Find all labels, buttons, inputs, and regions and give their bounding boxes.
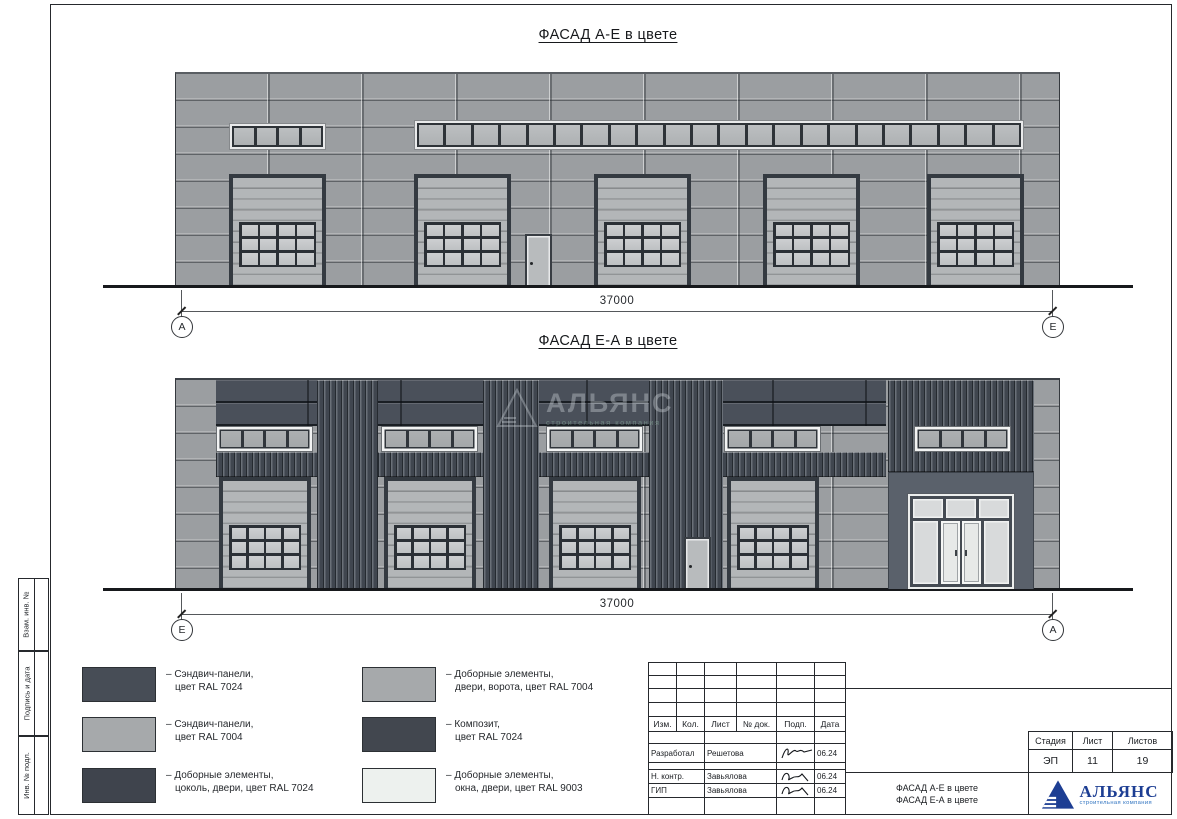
window-pane xyxy=(619,431,639,447)
window-pane xyxy=(958,253,974,265)
axis-marker-right: Е xyxy=(1042,316,1064,338)
window-pane xyxy=(266,542,281,554)
gate-window-grid xyxy=(937,222,1014,267)
storefront-main xyxy=(913,521,1009,585)
window-pane xyxy=(995,225,1011,237)
dimension-line xyxy=(181,614,1053,615)
entrance-door-right xyxy=(962,521,981,585)
window-pane xyxy=(831,225,847,237)
doc-title-line1: ФАСАД А-Е в цвете xyxy=(896,782,978,794)
window-pane xyxy=(614,528,629,540)
window-pane xyxy=(940,225,956,237)
window-pane xyxy=(221,431,241,447)
col-data: Дата xyxy=(815,717,846,732)
window-band xyxy=(724,426,821,452)
window-pane xyxy=(266,556,281,568)
col-podp: Подп. xyxy=(777,717,815,732)
window-band xyxy=(914,426,1011,452)
window-pane xyxy=(242,225,258,237)
window-pane xyxy=(614,556,629,568)
window-pane xyxy=(942,431,962,447)
window-pane xyxy=(562,528,577,540)
color-swatch xyxy=(82,717,156,752)
window-pane xyxy=(644,239,660,251)
window-pane xyxy=(464,253,480,265)
window-pane xyxy=(776,239,792,251)
window-pane xyxy=(987,431,1007,447)
window-pane xyxy=(995,125,1019,145)
glass-sidelite xyxy=(913,521,938,585)
window-pane xyxy=(482,253,498,265)
window-pane xyxy=(757,556,772,568)
window-pane xyxy=(803,125,827,145)
sectional-gate xyxy=(549,477,641,590)
window-band xyxy=(229,123,326,150)
window-pane xyxy=(427,253,443,265)
color-swatch xyxy=(362,717,436,752)
color-swatch xyxy=(82,768,156,803)
window-pane xyxy=(397,542,412,554)
door-handle xyxy=(955,550,957,556)
window-pane xyxy=(625,253,641,265)
legend-label: – Доборные элементы,цоколь, двери, цвет … xyxy=(166,768,314,803)
window-pane xyxy=(740,542,755,554)
window-pane xyxy=(266,528,281,540)
sidebar-label: Подпись и дата xyxy=(22,667,31,721)
window-pane xyxy=(774,431,794,447)
window-pane xyxy=(644,253,660,265)
sidebar-divider xyxy=(34,652,35,735)
window-pane xyxy=(397,556,412,568)
facade-title-bottom: ФАСАД Е-А в цвете xyxy=(408,333,808,349)
window-pane xyxy=(279,128,299,145)
window-pane xyxy=(579,542,594,554)
window-pane xyxy=(445,239,461,251)
window-pane xyxy=(289,431,309,447)
window-pane xyxy=(249,542,264,554)
storefront-transom xyxy=(913,499,1009,518)
sectional-gate xyxy=(727,477,819,590)
window-pane xyxy=(397,528,412,540)
window-pane xyxy=(431,556,446,568)
window-pane xyxy=(940,253,956,265)
window-pane xyxy=(279,253,295,265)
sectional-gate xyxy=(384,477,476,590)
window-pane xyxy=(614,542,629,554)
window-pane xyxy=(720,125,744,145)
window-pane xyxy=(858,125,882,145)
window-pane xyxy=(885,125,909,145)
window-pane xyxy=(666,125,690,145)
window-pane xyxy=(232,528,247,540)
sheet-label: Лист xyxy=(1073,732,1113,750)
legend-label: – Композит,цвет RAL 7024 xyxy=(446,717,523,752)
window-pane xyxy=(249,556,264,568)
window-pane xyxy=(297,239,313,251)
gate-window-grid xyxy=(737,525,809,570)
facade-e-a-drawing: АЛЬЯНС строительная компания xyxy=(175,378,1060,590)
dimension-value: 37000 xyxy=(181,598,1053,610)
col-doc: № док. xyxy=(737,717,777,732)
sidebar-box-podpis: Подпись и дата xyxy=(18,651,49,736)
window-band xyxy=(381,426,478,452)
window-pane xyxy=(919,431,939,447)
window-pane xyxy=(977,225,993,237)
window-pane xyxy=(244,431,264,447)
sectional-gate xyxy=(927,174,1024,287)
window-pane xyxy=(562,556,577,568)
window-pane xyxy=(662,225,678,237)
window-pane xyxy=(813,253,829,265)
window-pane xyxy=(445,253,461,265)
signature xyxy=(777,744,815,763)
window-pane xyxy=(757,542,772,554)
window-pane xyxy=(693,125,717,145)
window-pane xyxy=(774,528,789,540)
window-pane xyxy=(445,225,461,237)
window-pane xyxy=(662,253,678,265)
logo-subtitle: строительная компания xyxy=(1079,800,1158,806)
glass-pane xyxy=(979,499,1009,518)
window-pane xyxy=(995,253,1011,265)
legend-label: – Сэндвич-панели,цвет RAL 7024 xyxy=(166,667,253,702)
sidebar-box-inv: Инв. № подл. xyxy=(18,736,49,815)
role-gip: ГИП xyxy=(649,784,705,798)
window-pane xyxy=(774,542,789,554)
window-pane xyxy=(446,125,470,145)
louver-strip xyxy=(317,380,378,590)
name-gip: Завьялова xyxy=(705,784,777,798)
window-pane xyxy=(958,225,974,237)
service-door xyxy=(684,537,711,590)
legend-item: – Сэндвич-панели,цвет RAL 7004 xyxy=(82,717,253,752)
gate-window-grid xyxy=(229,525,301,570)
sectional-gate xyxy=(229,174,326,287)
sidebar-label: Взам. инв. № xyxy=(22,591,31,637)
window-pane xyxy=(775,125,799,145)
role-ncontrol: Н. контр. xyxy=(649,770,705,784)
window-pane xyxy=(977,239,993,251)
window-pane xyxy=(792,556,807,568)
window-pane xyxy=(474,125,498,145)
window-pane xyxy=(284,528,299,540)
sectional-gate xyxy=(219,477,311,590)
sidebar-box-vzam: Взам. инв. № xyxy=(18,578,49,651)
window-pane xyxy=(464,239,480,251)
window-pane xyxy=(562,542,577,554)
window-pane xyxy=(529,125,553,145)
gate-window-grid xyxy=(559,525,631,570)
titleblock-line xyxy=(845,688,1172,689)
window-pane xyxy=(607,225,623,237)
window-pane xyxy=(995,239,1011,251)
legend-item: – Доборные элементы,цоколь, двери, цвет … xyxy=(82,768,314,803)
service-door xyxy=(525,234,552,287)
window-pane xyxy=(284,542,299,554)
window-pane xyxy=(748,125,772,145)
window-pane xyxy=(431,542,446,554)
name-ncontrol: Завьялова xyxy=(705,770,777,784)
window-pane xyxy=(940,239,956,251)
sheets-total: 19 xyxy=(1113,750,1173,773)
window-pane xyxy=(797,431,817,447)
window-pane xyxy=(574,431,594,447)
window-pane xyxy=(776,253,792,265)
window-pane xyxy=(596,528,611,540)
titleblock-stage-table: Стадия Лист Листов ЭП 11 19 xyxy=(1028,731,1173,773)
legend-item: – Доборные элементы,окна, двери, цвет RA… xyxy=(362,768,583,803)
window-pane xyxy=(297,253,313,265)
logo-name: АЛЬЯНС xyxy=(1079,783,1158,800)
color-swatch xyxy=(362,667,436,702)
window-pane xyxy=(249,528,264,540)
window-pane xyxy=(449,542,464,554)
window-pane xyxy=(579,528,594,540)
gate-window-grid xyxy=(394,525,466,570)
window-pane xyxy=(279,239,295,251)
role-developer: Разработал xyxy=(649,744,705,763)
window-pane xyxy=(740,556,755,568)
window-pane xyxy=(242,239,258,251)
document-title-cell: ФАСАД А-Е в цвете ФАСАД Е-А в цвете xyxy=(846,773,1028,815)
window-pane xyxy=(454,431,474,447)
sidebar-divider xyxy=(34,737,35,814)
name-developer: Решетова xyxy=(705,744,777,763)
window-pane xyxy=(776,225,792,237)
date-gip: 06.24 xyxy=(815,784,846,798)
window-pane xyxy=(625,225,641,237)
stage-value: ЭП xyxy=(1029,750,1073,773)
window-pane xyxy=(967,125,991,145)
door-handle xyxy=(530,262,533,265)
sectional-gate xyxy=(414,174,511,287)
col-izm: Изм. xyxy=(649,717,677,732)
facade-title-top: ФАСАД А-Е в цвете xyxy=(408,27,808,43)
window-pane xyxy=(611,125,635,145)
window-pane xyxy=(260,253,276,265)
window-pane xyxy=(607,253,623,265)
window-pane xyxy=(792,528,807,540)
gate-window-grid xyxy=(773,222,850,267)
dimension-value: 37000 xyxy=(181,295,1053,307)
window-pane xyxy=(792,542,807,554)
window-pane xyxy=(297,225,313,237)
window-pane xyxy=(386,431,406,447)
legend-item: – Доборные элементы,двери, ворота, цвет … xyxy=(362,667,593,702)
window-pane xyxy=(625,239,641,251)
sectional-gate xyxy=(763,174,860,287)
window-pane xyxy=(551,431,571,447)
sheet-number: 11 xyxy=(1073,750,1113,773)
legend-item: – Сэндвич-панели,цвет RAL 7024 xyxy=(82,667,253,702)
window-pane xyxy=(242,253,258,265)
window-pane xyxy=(260,239,276,251)
legend-label: – Сэндвич-панели,цвет RAL 7004 xyxy=(166,717,253,752)
window-pane xyxy=(279,225,295,237)
gate-window-grid xyxy=(239,222,316,267)
window-pane xyxy=(794,253,810,265)
window-pane xyxy=(482,225,498,237)
window-pane xyxy=(977,253,993,265)
window-pane xyxy=(830,125,854,145)
window-pane xyxy=(583,125,607,145)
window-pane xyxy=(794,239,810,251)
window-pane xyxy=(556,125,580,145)
window-pane xyxy=(260,225,276,237)
window-pane xyxy=(638,125,662,145)
storefront-glazing xyxy=(910,496,1012,587)
window-pane xyxy=(302,128,322,145)
window-pane xyxy=(813,239,829,251)
entrance-door-left xyxy=(941,521,960,585)
sectional-gate xyxy=(594,174,691,287)
window-pane xyxy=(662,239,678,251)
window-pane xyxy=(579,556,594,568)
window-pane xyxy=(427,225,443,237)
window-pane xyxy=(414,528,429,540)
window-pane xyxy=(431,528,446,540)
window-pane xyxy=(596,542,611,554)
sheets-label: Листов xyxy=(1113,732,1173,750)
window-pane xyxy=(419,125,443,145)
window-pane xyxy=(449,556,464,568)
date-developer: 06.24 xyxy=(815,744,846,763)
window-pane xyxy=(940,125,964,145)
titleblock-revision-table: Изм. Кол. Лист № док. Подп. Дата Разрабо… xyxy=(648,662,846,815)
col-kol: Кол. xyxy=(677,717,705,732)
window-pane xyxy=(266,431,286,447)
glass-pane xyxy=(913,499,943,518)
glass-sidelite xyxy=(984,521,1009,585)
window-pane xyxy=(831,239,847,251)
window-pane xyxy=(813,225,829,237)
entrance-portal xyxy=(888,472,1034,590)
window-pane xyxy=(257,128,277,145)
window-pane xyxy=(501,125,525,145)
window-pane xyxy=(644,225,660,237)
window-pane xyxy=(774,556,789,568)
window-pane xyxy=(729,431,749,447)
axis-marker-left: Е xyxy=(171,619,193,641)
drawing-sheet: Взам. инв. № Подпись и дата Инв. № подл.… xyxy=(0,0,1177,819)
sidebar-divider xyxy=(34,579,35,650)
window-pane xyxy=(409,431,429,447)
window-band xyxy=(216,426,313,452)
axis-marker-right: А xyxy=(1042,619,1064,641)
legend-label: – Доборные элементы,окна, двери, цвет RA… xyxy=(446,768,583,803)
window-pane xyxy=(482,239,498,251)
window-pane xyxy=(234,128,254,145)
window-pane xyxy=(414,556,429,568)
company-logo: АЛЬЯНС строительная компания xyxy=(1029,773,1172,815)
window-pane xyxy=(464,225,480,237)
window-pane xyxy=(596,556,611,568)
window-pane xyxy=(831,253,847,265)
window-band xyxy=(546,426,643,452)
window-pane xyxy=(794,225,810,237)
window-pane xyxy=(284,556,299,568)
louver-strip xyxy=(483,380,539,590)
logo-triangle-icon xyxy=(1042,780,1074,809)
glass-pane xyxy=(946,499,976,518)
legend-item: – Композит,цвет RAL 7024 xyxy=(362,717,523,752)
dimension-line xyxy=(181,311,1053,312)
window-pane xyxy=(740,528,755,540)
door-handle xyxy=(689,565,692,568)
gate-window-grid xyxy=(604,222,681,267)
window-pane xyxy=(964,431,984,447)
legend-label: – Доборные элементы,двери, ворота, цвет … xyxy=(446,667,593,702)
stage-label: Стадия xyxy=(1029,732,1073,750)
color-swatch xyxy=(82,667,156,702)
window-pane xyxy=(912,125,936,145)
gate-window-grid xyxy=(424,222,501,267)
window-pane xyxy=(414,542,429,554)
window-pane xyxy=(958,239,974,251)
window-pane xyxy=(232,542,247,554)
ground-line xyxy=(103,285,1133,288)
window-pane xyxy=(757,528,772,540)
doc-title-line2: ФАСАД Е-А в цвете xyxy=(896,794,978,806)
window-pane xyxy=(752,431,772,447)
date-ncontrol: 06.24 xyxy=(815,770,846,784)
window-band xyxy=(414,120,1024,150)
col-list: Лист xyxy=(705,717,737,732)
facade-a-e-drawing xyxy=(175,72,1060,287)
window-pane xyxy=(232,556,247,568)
axis-marker-left: А xyxy=(171,316,193,338)
window-pane xyxy=(427,239,443,251)
window-pane xyxy=(607,239,623,251)
sidebar-label: Инв. № подл. xyxy=(22,752,31,799)
signature xyxy=(777,784,815,798)
window-pane xyxy=(596,431,616,447)
signature xyxy=(777,770,815,784)
color-swatch xyxy=(362,768,436,803)
door-handle xyxy=(965,550,967,556)
window-pane xyxy=(449,528,464,540)
window-pane xyxy=(431,431,451,447)
